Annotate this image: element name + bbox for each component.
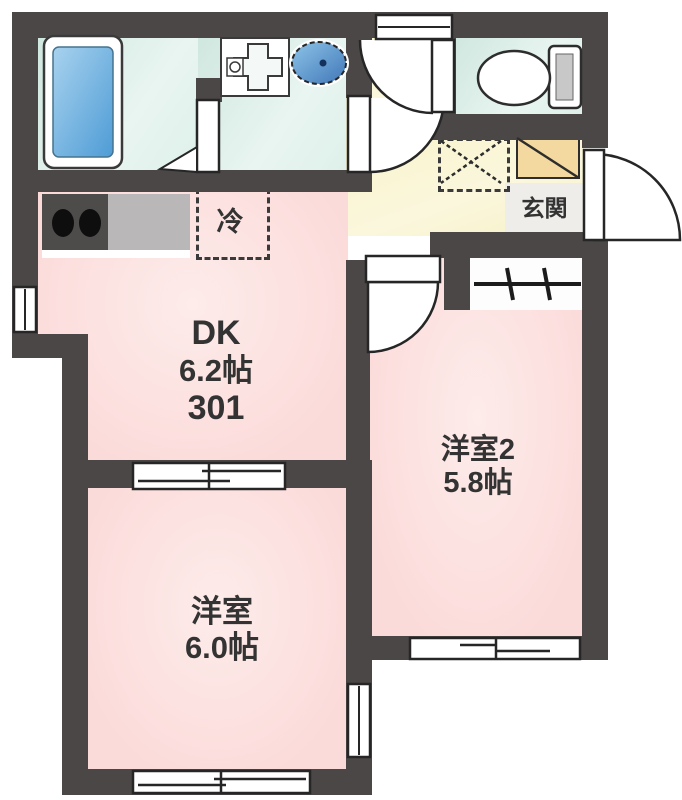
bathroom-door-swing-icon bbox=[160, 147, 197, 172]
bathroom-door-leaf bbox=[197, 100, 219, 172]
hallway-top-window-icon bbox=[376, 15, 452, 39]
western1-right-window-icon bbox=[348, 684, 370, 757]
western2-door-swing-icon bbox=[368, 282, 438, 352]
plan-symbols bbox=[0, 0, 682, 800]
dk-room-number: 301 bbox=[116, 389, 316, 428]
western-room-1-label: 洋室 6.0帖 bbox=[122, 594, 322, 665]
stove-burner-right bbox=[79, 209, 101, 237]
washroom-door-leaf bbox=[348, 96, 370, 172]
entrance-door-leaf bbox=[584, 150, 604, 240]
dk-western1-sliding-door-icon bbox=[133, 463, 285, 489]
western1-bottom-window-icon bbox=[133, 771, 310, 793]
stove-burner-left bbox=[52, 209, 74, 237]
toilet-door-leaf bbox=[432, 40, 454, 112]
entrance-door-swing-icon bbox=[594, 154, 680, 240]
shoe-cabinet-diagonal bbox=[517, 138, 579, 178]
western-room-2-label: 洋室2 5.8帖 bbox=[380, 434, 576, 501]
western-room-1-size: 6.0帖 bbox=[122, 630, 322, 666]
western-room-2-name: 洋室2 bbox=[380, 434, 576, 467]
western2-door-leaf bbox=[366, 256, 440, 282]
entrance-label: 玄関 bbox=[505, 195, 584, 221]
floor-plan: 冷 bbox=[0, 0, 682, 800]
dk-room-label: DK 6.2帖 301 bbox=[116, 314, 316, 428]
wash-basin-drain bbox=[320, 60, 327, 67]
wash-basin-icon bbox=[292, 42, 346, 84]
toilet-icon bbox=[478, 51, 550, 105]
western2-bottom-window-icon bbox=[410, 638, 580, 659]
toilet-tank-lid bbox=[556, 54, 573, 100]
bathtub-basin bbox=[53, 47, 113, 157]
western-room-2-size: 5.8帖 bbox=[380, 467, 576, 500]
western-room-1-name: 洋室 bbox=[122, 594, 322, 630]
dk-left-window-icon bbox=[14, 287, 36, 332]
dk-room-size: 6.2帖 bbox=[116, 353, 316, 389]
dk-room-name: DK bbox=[116, 314, 316, 353]
